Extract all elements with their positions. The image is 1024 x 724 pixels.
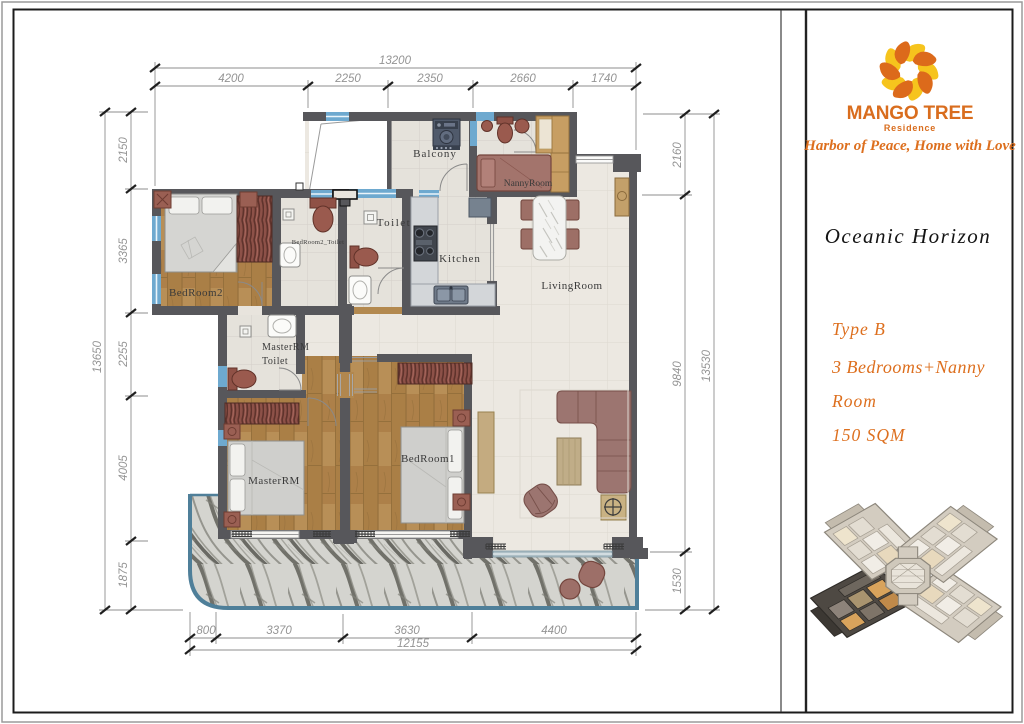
svg-text:3365: 3365: [118, 238, 130, 264]
svg-text:NannyRoom: NannyRoom: [504, 179, 553, 189]
svg-text:LivingRoom: LivingRoom: [541, 280, 602, 292]
svg-text:4005: 4005: [118, 455, 130, 481]
svg-text:13530: 13530: [701, 349, 713, 382]
svg-text:Type B: Type B: [832, 319, 886, 339]
svg-text:150 SQM: 150 SQM: [832, 425, 906, 445]
svg-text:2350: 2350: [416, 73, 443, 85]
svg-text:Balcony: Balcony: [413, 148, 457, 160]
svg-text:Room: Room: [831, 391, 877, 411]
svg-text:1530: 1530: [672, 568, 684, 594]
svg-text:13650: 13650: [92, 340, 104, 373]
svg-text:2660: 2660: [509, 73, 536, 85]
svg-text:3 Bedrooms+Nanny: 3 Bedrooms+Nanny: [831, 357, 985, 377]
svg-text:BedRoom2: BedRoom2: [169, 287, 223, 299]
svg-text:Toilet: Toilet: [377, 217, 412, 229]
svg-text:13200: 13200: [379, 55, 412, 67]
svg-text:3370: 3370: [266, 625, 292, 637]
svg-text:1740: 1740: [591, 73, 617, 85]
svg-text:2160: 2160: [672, 142, 684, 169]
svg-text:2250: 2250: [334, 73, 361, 85]
svg-text:BedRoom1: BedRoom1: [401, 453, 455, 465]
svg-text:Toilet: Toilet: [262, 356, 288, 367]
svg-text:4400: 4400: [541, 625, 567, 637]
svg-text:MasterRM: MasterRM: [248, 475, 300, 487]
svg-text:2255: 2255: [118, 341, 130, 368]
svg-text:Oceanic Horizon: Oceanic Horizon: [825, 224, 992, 248]
svg-text:800: 800: [196, 625, 216, 637]
svg-text:MANGO TREE: MANGO TREE: [847, 103, 974, 124]
svg-text:MasterRM: MasterRM: [262, 342, 309, 353]
svg-text:Harbor of Peace, Home with Lov: Harbor of Peace, Home with Love: [803, 138, 1016, 154]
svg-text:3630: 3630: [394, 625, 420, 637]
svg-text:12155: 12155: [397, 638, 430, 650]
svg-text:Kitchen: Kitchen: [439, 253, 481, 265]
svg-text:9840: 9840: [672, 361, 684, 387]
svg-text:BedRoom2_Toilet: BedRoom2_Toilet: [292, 239, 344, 246]
svg-text:4200: 4200: [218, 73, 244, 85]
svg-text:2150: 2150: [118, 137, 130, 164]
svg-text:Residence: Residence: [884, 123, 936, 133]
svg-text:1875: 1875: [118, 562, 130, 588]
